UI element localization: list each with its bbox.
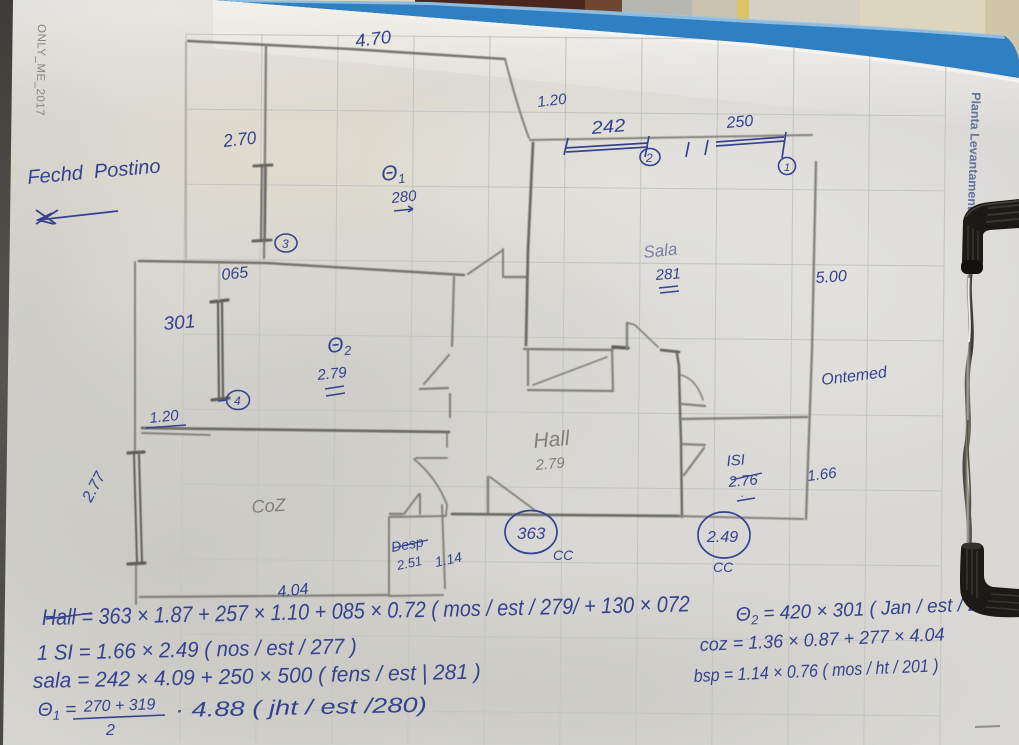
svg-text:065: 065 [221, 264, 249, 284]
svg-text:ONLY_ME_2017: ONLY_ME_2017 [33, 24, 47, 116]
svg-text:CoZ: CoZ [251, 495, 287, 517]
svg-text:1: 1 [784, 162, 790, 174]
svg-text:242: 242 [589, 115, 626, 138]
svg-text:1.20: 1.20 [149, 407, 180, 427]
svg-text:2: 2 [645, 151, 653, 165]
svg-text:5.00: 5.00 [815, 268, 847, 287]
svg-text:280: 280 [390, 187, 418, 207]
svg-text:1.66: 1.66 [806, 464, 838, 485]
svg-text:CC: CC [553, 547, 574, 563]
svg-text:250: 250 [725, 113, 754, 132]
svg-text:3: 3 [282, 237, 289, 251]
svg-text:2.49: 2.49 [706, 529, 738, 546]
svg-text:270 + 319: 270 + 319 [83, 696, 156, 716]
svg-text:2.79: 2.79 [534, 454, 566, 474]
svg-text:ISI: ISI [726, 451, 746, 470]
svg-text:.: . [741, 488, 744, 500]
svg-text:CC: CC [713, 559, 734, 575]
svg-text:281: 281 [654, 265, 681, 284]
svg-text:301: 301 [163, 311, 197, 335]
svg-text:2: 2 [105, 722, 115, 739]
svg-text:Sala: Sala [642, 240, 678, 262]
svg-text:2.70: 2.70 [221, 128, 257, 151]
svg-text:363: 363 [517, 524, 546, 543]
svg-text:4.04: 4.04 [277, 581, 310, 601]
svg-text:2.79: 2.79 [316, 364, 348, 384]
svg-text:Hall: Hall [532, 427, 571, 453]
svg-text:4: 4 [234, 394, 241, 408]
svg-text:1.20: 1.20 [536, 90, 568, 111]
